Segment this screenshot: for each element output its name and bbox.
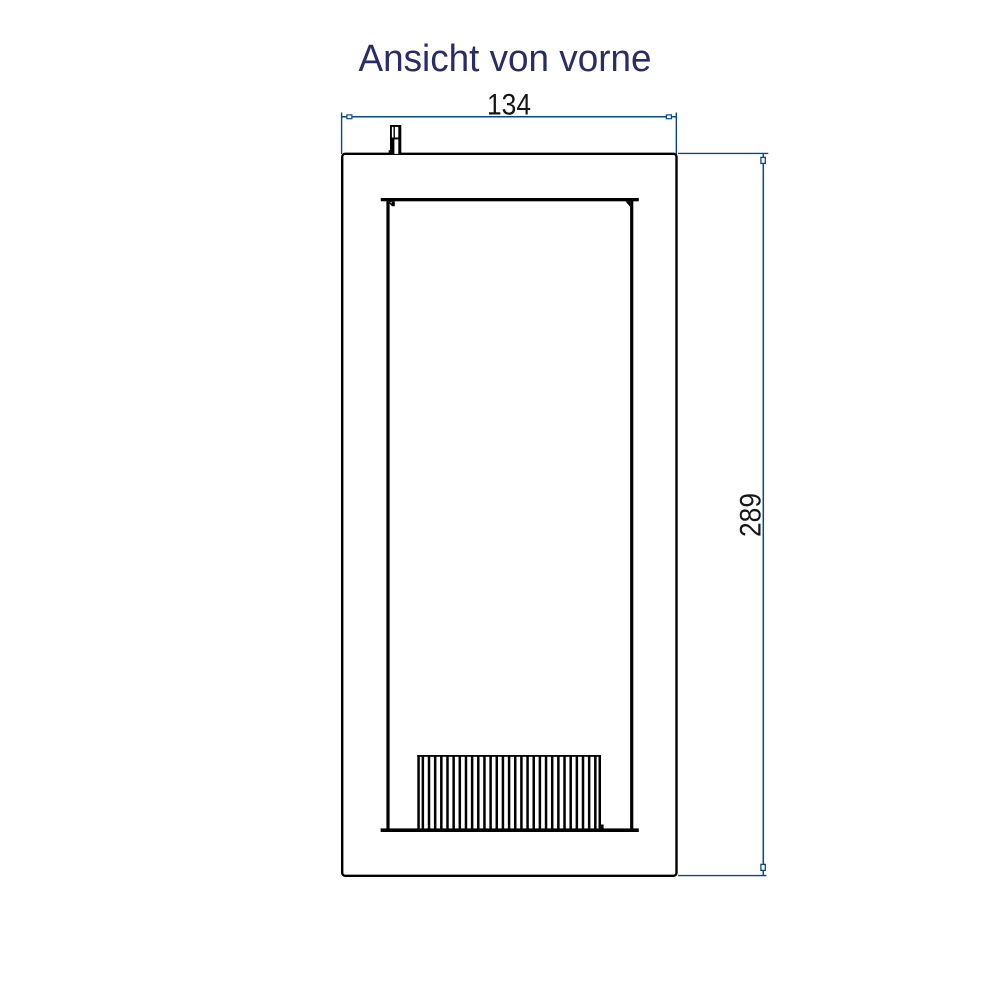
svg-text:Ansicht von vorne: Ansicht von vorne	[359, 38, 652, 80]
svg-text:289: 289	[735, 493, 768, 537]
